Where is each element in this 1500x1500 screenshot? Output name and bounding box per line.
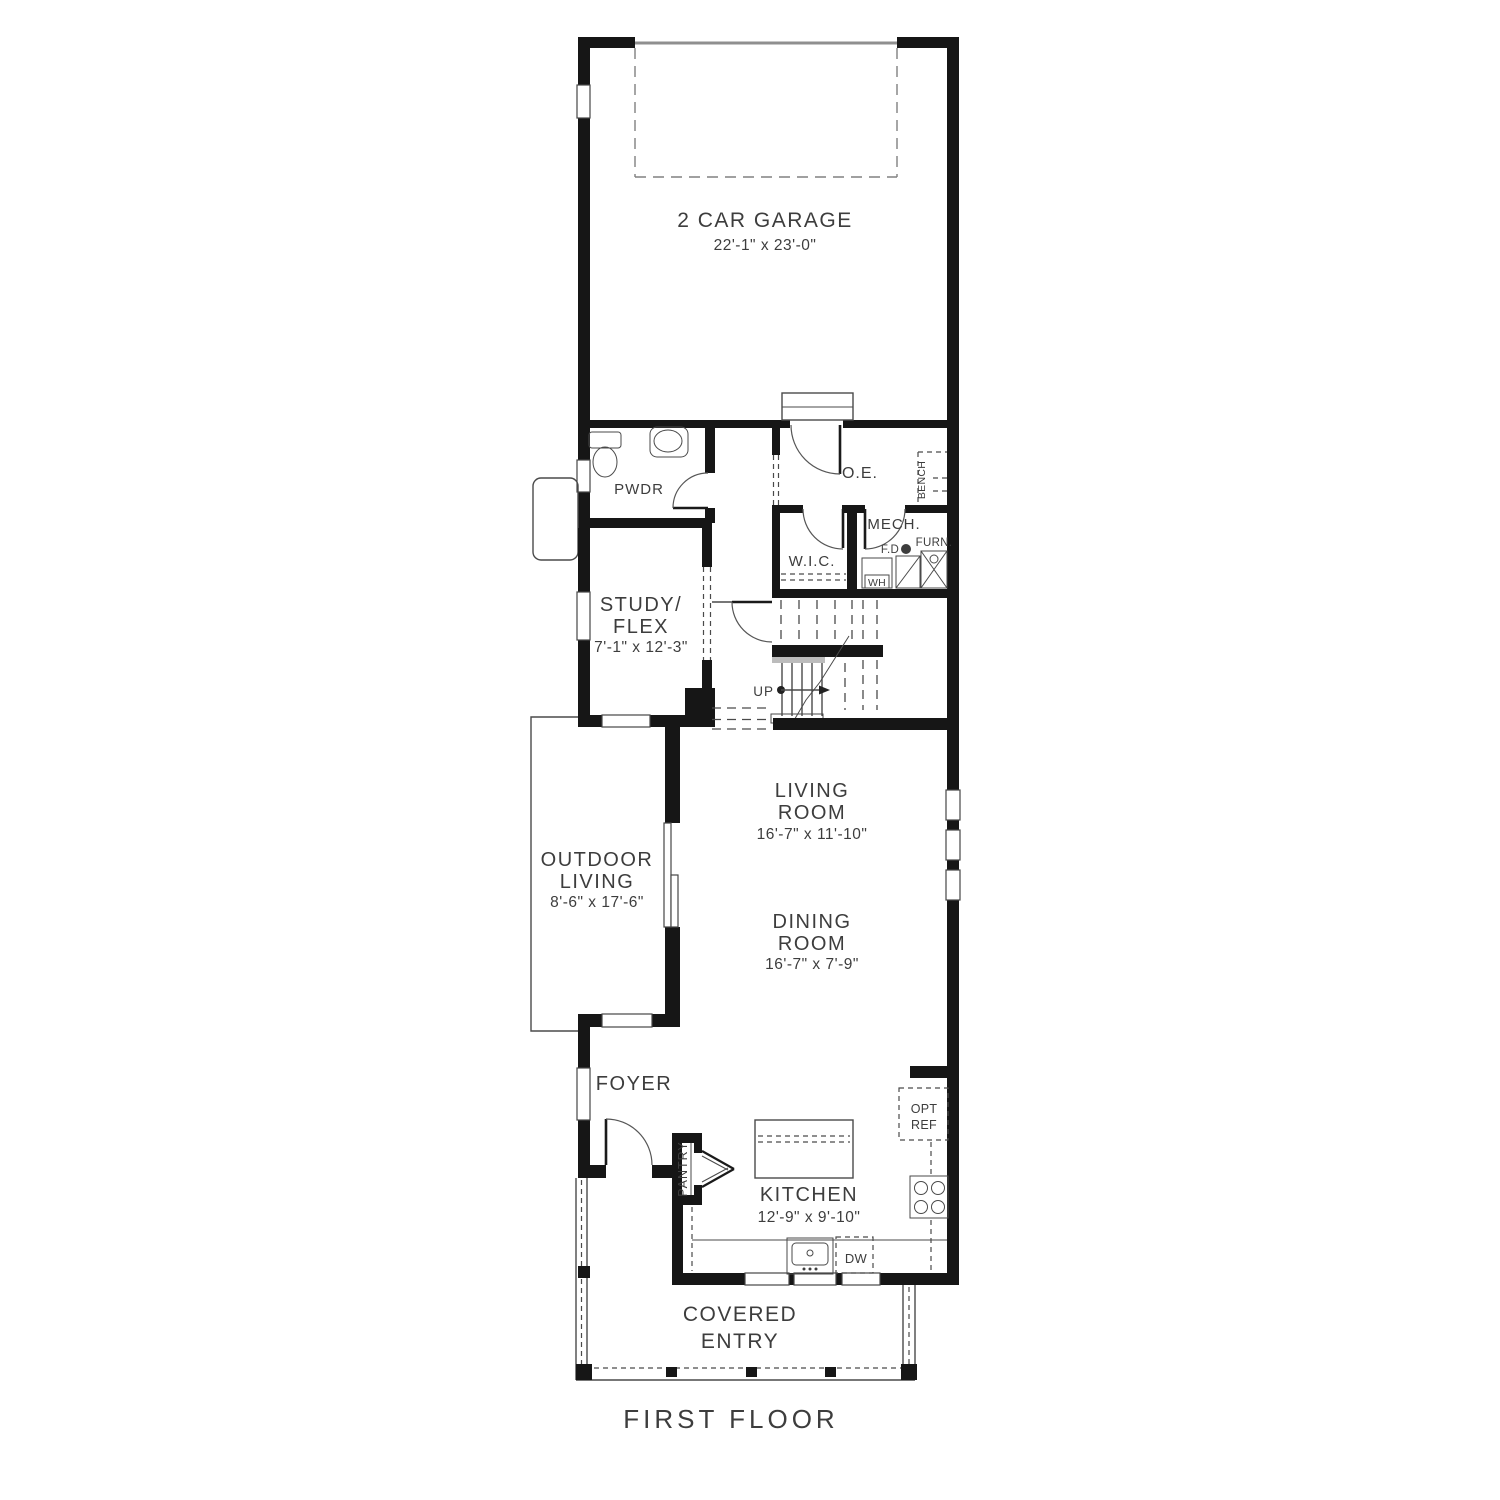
porch-post (576, 1364, 592, 1380)
dining-label-2: ROOM (778, 933, 846, 955)
porch-post (666, 1367, 677, 1377)
study-window (577, 592, 590, 640)
porch-post (825, 1367, 836, 1377)
living-label-2: ROOM (778, 802, 846, 824)
opt-ref-label-1: OPT (911, 1102, 938, 1116)
water-heater-label: WH (868, 577, 886, 589)
living-label-1: LIVING (775, 780, 850, 802)
floor-title: FIRST FLOOR (623, 1404, 838, 1434)
living-window-3 (946, 870, 960, 900)
dining-dims: 16'-7" x 7'-9" (765, 956, 859, 973)
dishwasher-label: DW (845, 1251, 868, 1266)
furnace-label: FURN. (916, 537, 953, 549)
living-window-1 (946, 790, 960, 820)
living-window-2 (946, 830, 960, 860)
outdoor-label-2: LIVING (560, 871, 635, 893)
porch-post (746, 1367, 757, 1377)
kitchen-dims: 12'-9" x 9'-10" (758, 1209, 861, 1226)
study-label-2: FLEX (613, 616, 669, 638)
study-dims: 7'-1" x 12'-3" (594, 639, 688, 656)
porch-post (578, 1266, 590, 1278)
kitchen-window-1 (745, 1273, 789, 1285)
foyer-north-window (602, 1014, 652, 1027)
bench-label: BENCH (916, 461, 928, 499)
foyer-west-window (577, 1068, 590, 1120)
garage-window (577, 85, 590, 118)
foyer-label: FOYER (596, 1073, 672, 1095)
powder-label: PWDR (614, 481, 664, 498)
pantry-label: PANTRY (676, 1141, 690, 1197)
opt-ref-label-2: REF (911, 1118, 937, 1132)
outdoor-label-1: OUTDOOR (541, 849, 654, 871)
outdoor-dims: 8'-6" x 17'-6" (550, 894, 644, 911)
entry-label-2: ENTRY (701, 1330, 779, 1353)
study-south-window (602, 715, 650, 727)
kitchen-window-2 (794, 1273, 836, 1285)
garage-dims: 22'-1" x 23'-0" (714, 237, 817, 254)
garage-label: 2 CAR GARAGE (677, 209, 853, 232)
living-dims: 16'-7" x 11'-10" (757, 826, 868, 843)
stairs-up-label: UP (753, 684, 774, 699)
kitchen-window-3 (842, 1273, 880, 1285)
porch-post (901, 1364, 917, 1380)
kitchen-label: KITCHEN (760, 1184, 858, 1206)
closet-label: W.I.C. (789, 553, 836, 570)
owners-entry-label: O.E. (842, 465, 878, 482)
study-label-1: STUDY/ (600, 594, 682, 616)
dining-label-1: DINING (773, 911, 852, 933)
floor-plan-page: 2 CAR GARAGE 22'-1" x 23'-0" PWDR O (0, 0, 1500, 1500)
floor-plan-drawing: 2 CAR GARAGE 22'-1" x 23'-0" PWDR O (0, 0, 1500, 1500)
stair-nosing (772, 657, 825, 663)
mech-label: MECH. (867, 516, 920, 533)
floor-drain-icon (901, 544, 911, 554)
floor-drain-label: F.D (881, 544, 899, 556)
powder-window (577, 460, 590, 492)
entry-label-1: COVERED (683, 1303, 797, 1326)
